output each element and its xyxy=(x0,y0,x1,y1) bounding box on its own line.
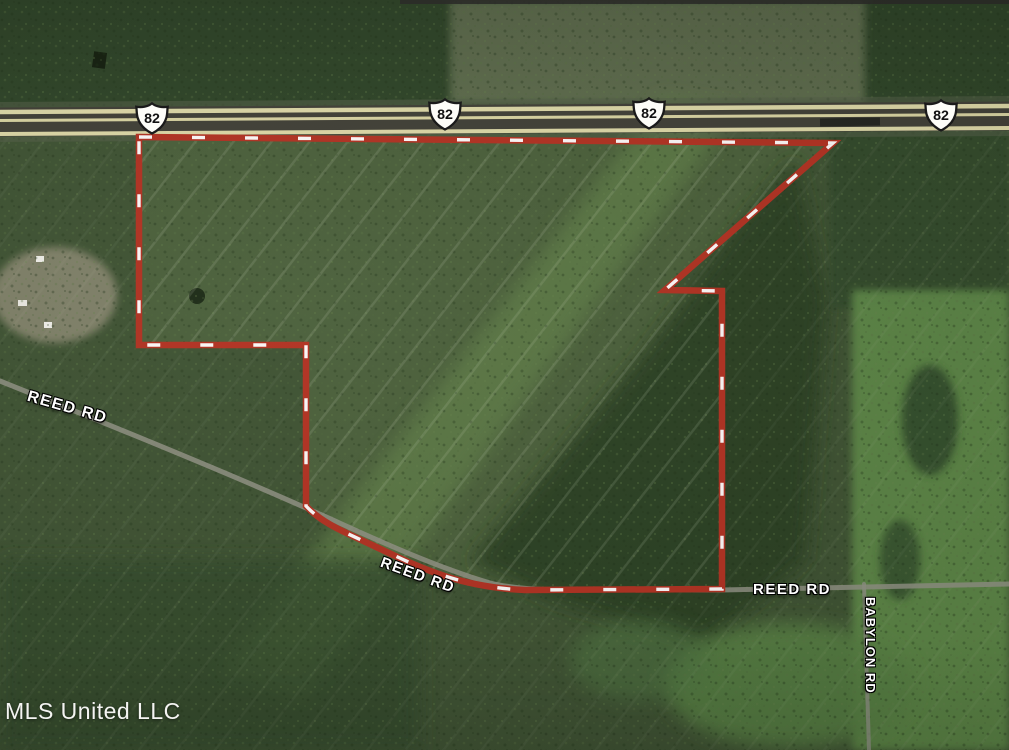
route-82-shield-icon: 82 xyxy=(426,97,464,132)
road-label-babylon-rd: BABYLON RD xyxy=(863,597,878,694)
route-82-shield-icon: 82 xyxy=(133,101,171,136)
route-82-shield-icon: 82 xyxy=(630,96,668,131)
attribution-text: MLS United LLC xyxy=(5,698,181,725)
route-number: 82 xyxy=(641,106,657,122)
route-number: 82 xyxy=(933,108,949,124)
route-82-shield-icon: 82 xyxy=(922,98,960,133)
satellite-map[interactable]: 82 82 82 82 REED RD REED RD REED RD BABY… xyxy=(0,0,1009,750)
route-number: 82 xyxy=(437,107,453,123)
road-label-reed-rd-east: REED RD xyxy=(753,581,831,598)
route-number: 82 xyxy=(144,111,160,127)
